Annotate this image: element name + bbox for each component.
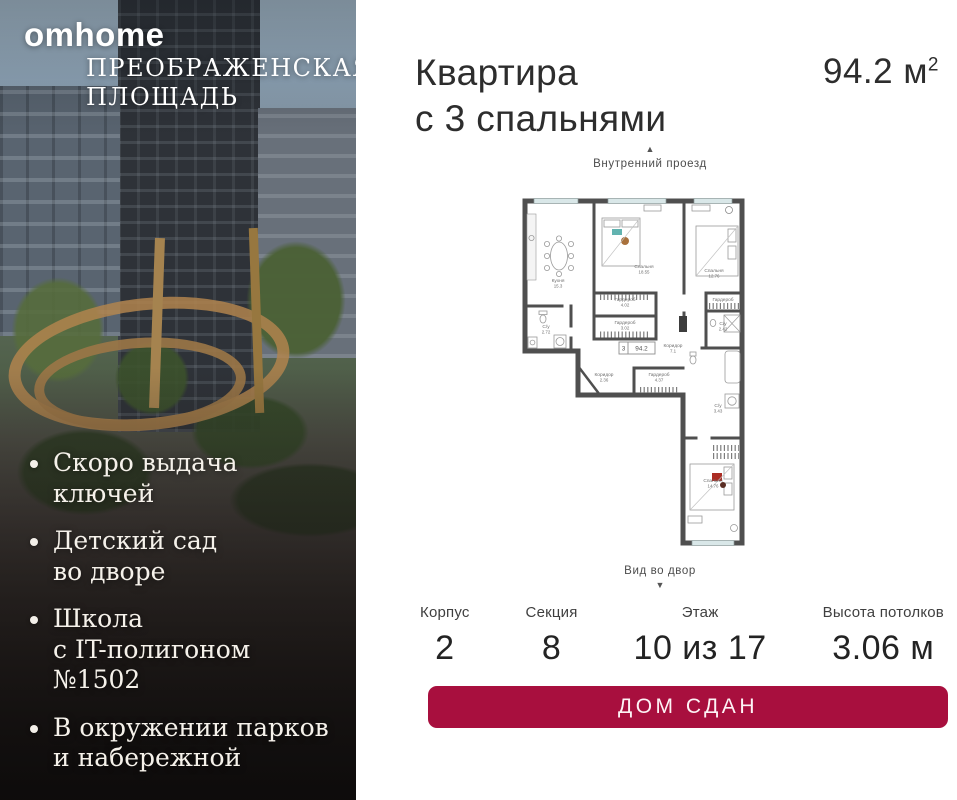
- plan-top-label: Внутренний проезд: [593, 158, 707, 170]
- area-value: 94.2: [823, 52, 893, 91]
- status-button[interactable]: ДОМ СДАН: [428, 686, 948, 728]
- area-superscript: 2: [928, 54, 939, 75]
- apartment-title: Квартира с 3 спальнями: [415, 50, 666, 142]
- detail-value: 2: [420, 629, 470, 668]
- plan-bottom-label: Вид во двор: [624, 565, 696, 577]
- detail-value: 3.06 м: [823, 629, 944, 668]
- apartment-area: 94.2 м2: [823, 52, 939, 92]
- room-label: Гардероб: [712, 297, 733, 303]
- detail-value: 10 из 17: [634, 629, 767, 668]
- feature-item: В окружении паркови набережной: [26, 713, 346, 774]
- floorplan: Кухня15.3Спальня18.55Спальня12.76Гардеро…: [516, 198, 752, 552]
- detail-label: Высота потолков: [823, 604, 944, 621]
- feature-list: Скоро выдачаключейДетский садво двореШко…: [26, 448, 346, 791]
- badge-area: 94.2: [635, 346, 648, 353]
- detail-col: Корпус2: [420, 604, 470, 668]
- detail-label: Секция: [526, 604, 578, 621]
- feature-item: Скоро выдачаключей: [26, 448, 346, 509]
- detail-label: Этаж: [634, 604, 767, 621]
- apartment-title-line1: Квартира: [415, 50, 666, 96]
- detail-col: Этаж10 из 17: [634, 604, 767, 668]
- feature-item: Школас IT-полигоном№1502: [26, 604, 346, 696]
- badge-rooms: 3: [622, 346, 626, 353]
- room-label: С/у3.43: [714, 403, 723, 413]
- detail-col: Высота потолков3.06 м: [823, 604, 944, 668]
- apartment-title-line2: с 3 спальнями: [415, 96, 666, 142]
- project-name: ПРЕОБРАЖЕНСКАЯ ПЛОЩАДЬ: [86, 54, 356, 112]
- bullet-dot-icon: [30, 616, 38, 624]
- bullet-dot-icon: [30, 538, 38, 546]
- feature-text: Скоро выдачаключей: [53, 448, 238, 509]
- project-name-line1: ПРЕОБРАЖЕНСКАЯ: [86, 54, 356, 83]
- bullet-dot-icon: [30, 725, 38, 733]
- details-row: Корпус2Секция8Этаж10 из 17Высота потолко…: [420, 604, 944, 668]
- feature-text: Школас IT-полигоном№1502: [53, 604, 250, 696]
- brand-logo: omhome: [24, 16, 165, 54]
- bullet-dot-icon: [30, 460, 38, 468]
- detail-col: Секция8: [526, 604, 578, 668]
- direction-arrow-up-icon: ▲: [646, 144, 655, 154]
- room-label: С/у2.72: [542, 324, 551, 334]
- feature-text: Детский садво дворе: [53, 526, 217, 587]
- feature-item: Детский садво дворе: [26, 526, 346, 587]
- floorplan-badge: 3 94.2: [619, 342, 655, 354]
- area-unit: м: [903, 52, 928, 91]
- project-name-line2: ПЛОЩАДЬ: [86, 83, 356, 112]
- feature-text: В окружении паркови набережной: [53, 713, 329, 774]
- listing-card: omhome ПРЕОБРАЖЕНСКАЯ ПЛОЩАДЬ Скоро выда…: [0, 0, 957, 800]
- room-label: С/у2.42: [719, 321, 728, 331]
- detail-label: Корпус: [420, 604, 470, 621]
- project-photo: omhome ПРЕОБРАЖЕНСКАЯ ПЛОЩАДЬ Скоро выда…: [0, 0, 356, 800]
- direction-arrow-down-icon: ▼: [656, 580, 665, 590]
- detail-value: 8: [526, 629, 578, 668]
